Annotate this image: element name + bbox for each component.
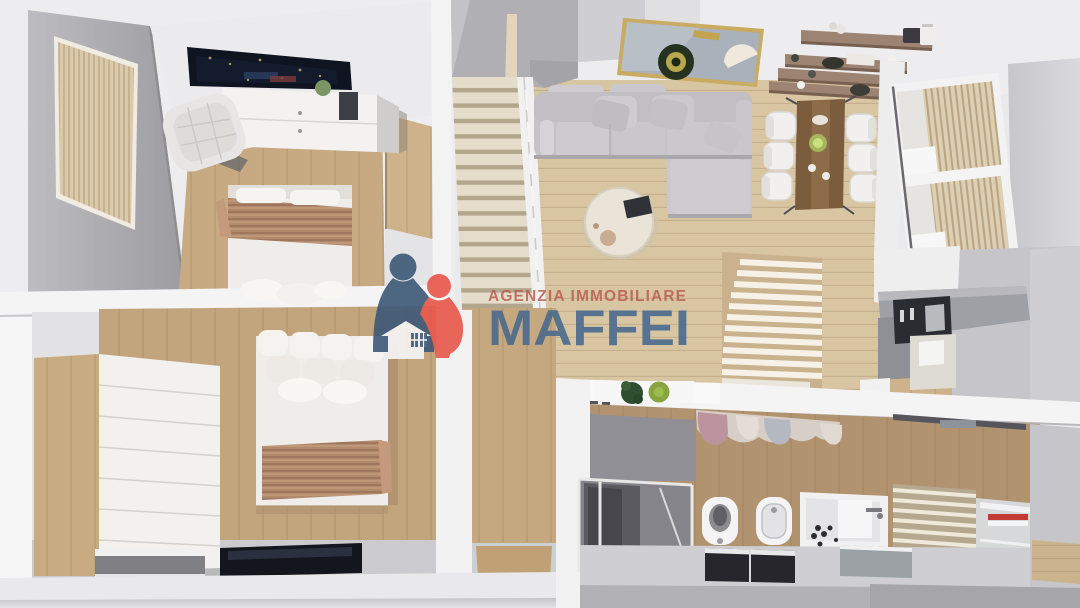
- svg-text:MAFFEI: MAFFEI: [488, 300, 690, 356]
